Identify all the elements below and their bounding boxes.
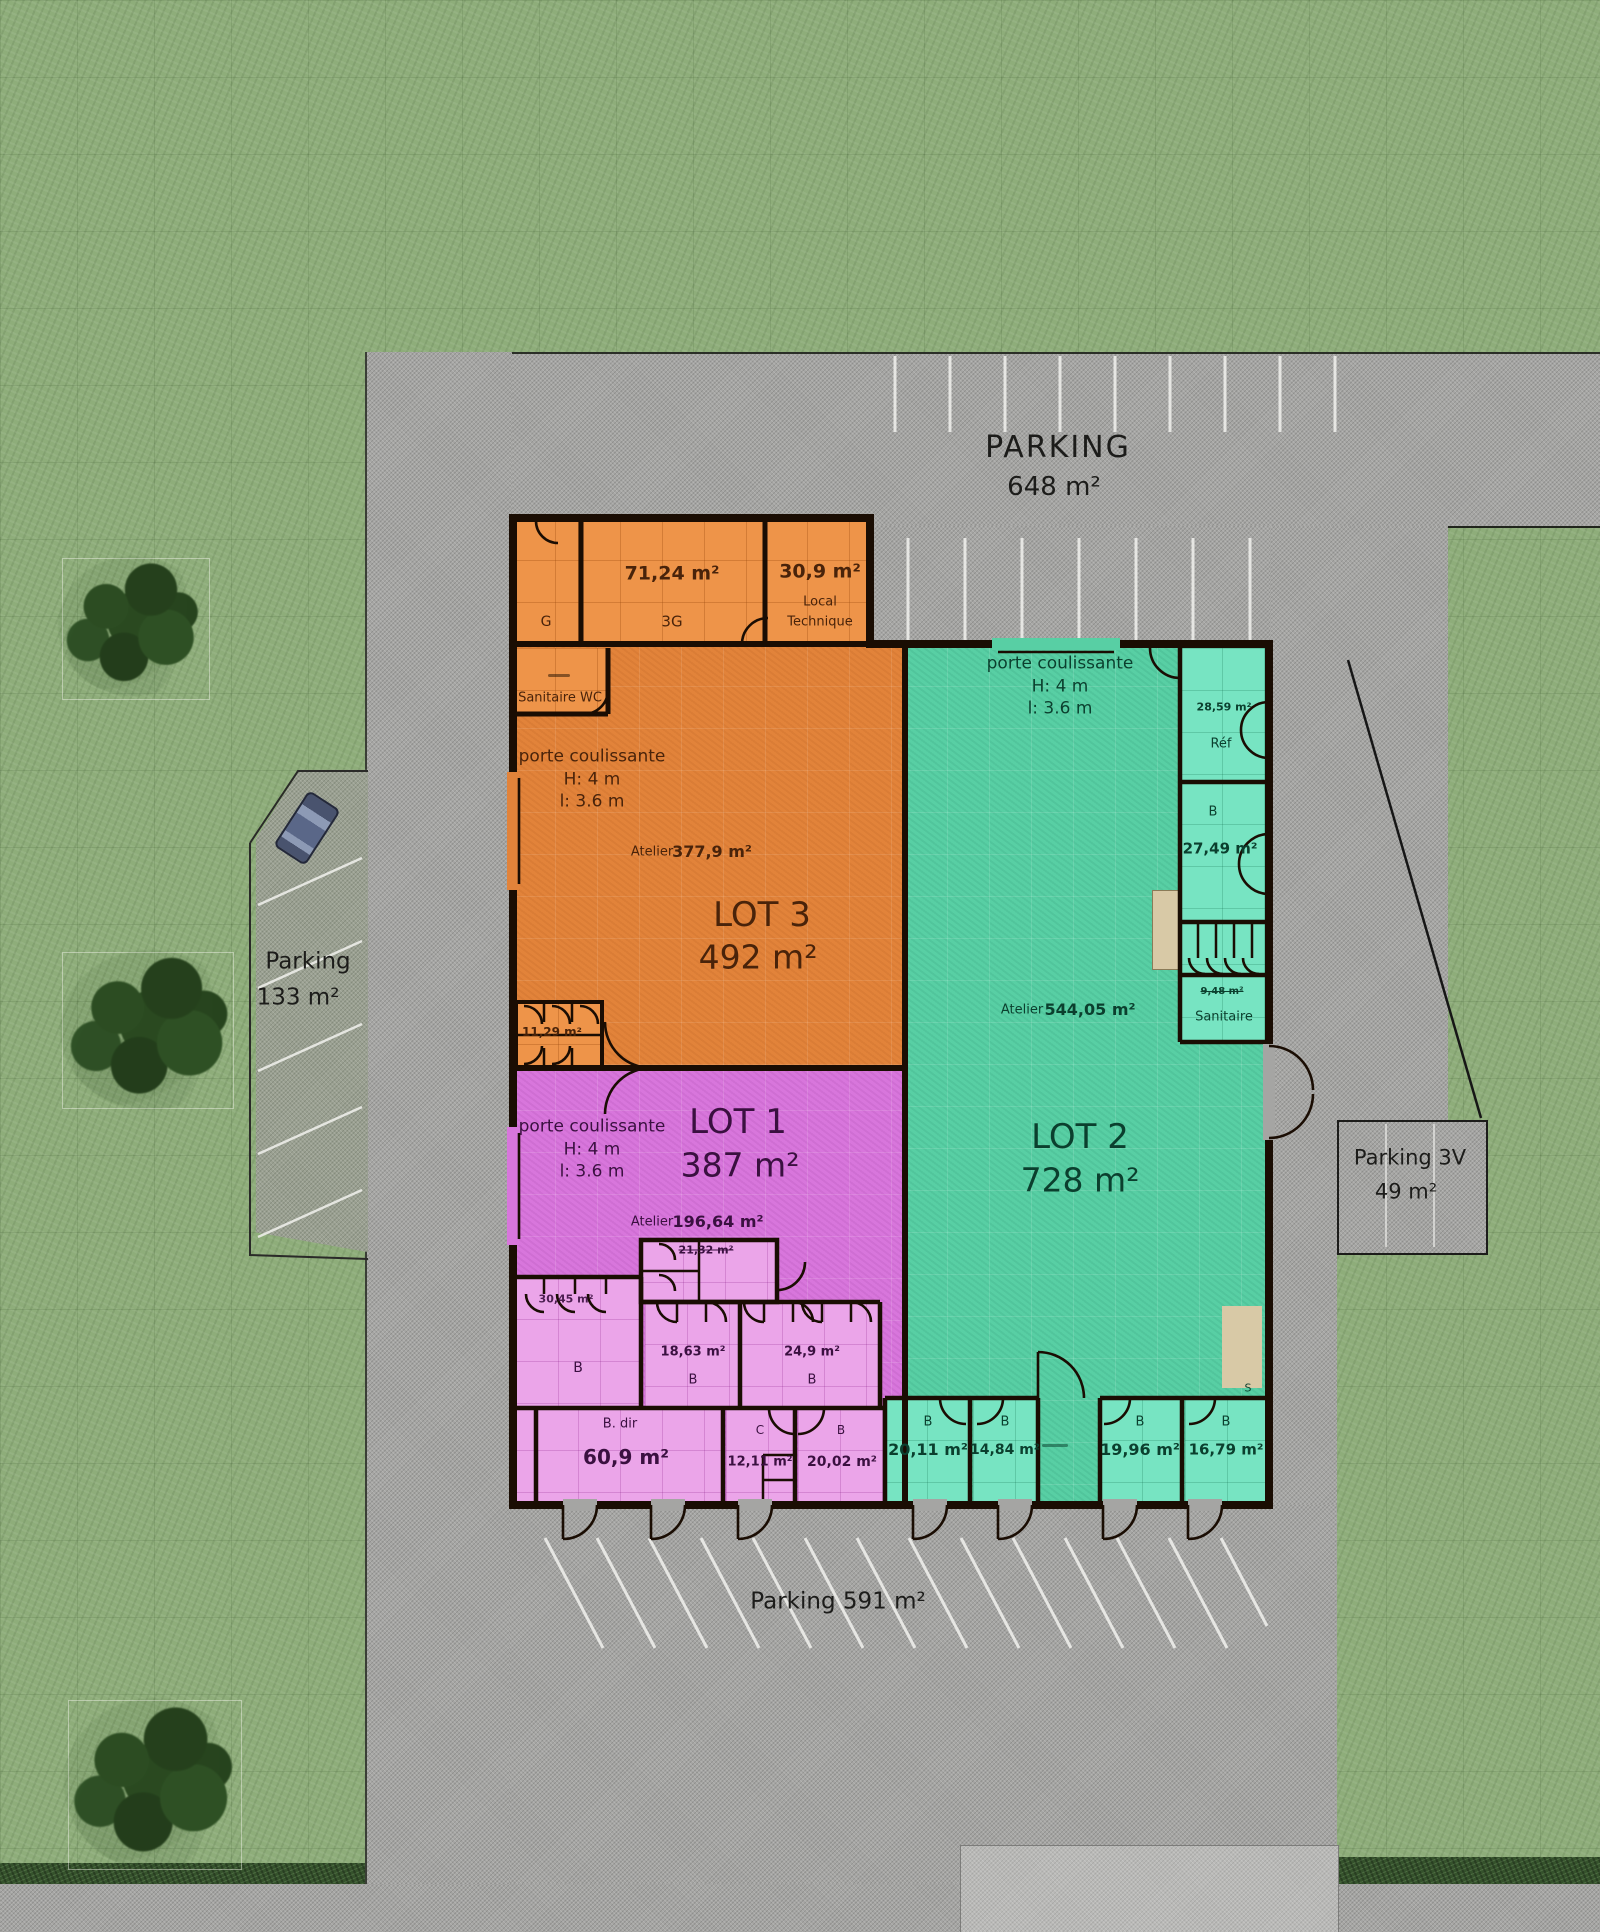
lot1-room-2002-area: 20,02 m²	[807, 1455, 877, 1469]
parking-left-area: 133 m²	[257, 987, 340, 1010]
door-arcs	[519, 521, 1313, 1539]
lot1-room-249-name: B	[808, 1374, 817, 1387]
lot2-room-2749-area: 27,49 m²	[1183, 842, 1258, 857]
lot2-room-1996-area: 19,96 m²	[1100, 1442, 1180, 1458]
lot3-room-1129-area: 11,29 m²	[522, 1026, 582, 1038]
lot1-room-1863-name: B	[689, 1374, 698, 1387]
lot2-exit-label: S	[1245, 1383, 1252, 1394]
annex-g-label: G	[541, 615, 552, 629]
lot2-room-ref-area: 28,59 m²	[1197, 702, 1252, 713]
lot3-atelier-area: 377,9 m²	[672, 844, 752, 860]
lot1-room-b-label: B	[573, 1361, 583, 1375]
local-technique-name-1: Local	[803, 596, 837, 609]
lot2-door-line1: porte coulissante	[987, 656, 1134, 673]
lot1-room-3045-area: 30,45 m²	[539, 1294, 594, 1305]
lot1-room-bdir-area: 60,9 m²	[583, 1447, 669, 1467]
boundary-diagonal	[1348, 660, 1481, 1118]
lot3-atelier-label: Atelier	[631, 846, 673, 859]
parking-top-area: 648 m²	[1007, 474, 1101, 500]
tiny-area-note	[1042, 1444, 1068, 1447]
lot3-sanitaire-wc-label: Sanitaire WC	[518, 692, 602, 705]
lot2-room-1996-name: B	[1136, 1416, 1145, 1429]
parking-bottom-label: Parking 591 m²	[750, 1591, 925, 1614]
lot1-room-249-area: 24,9 m²	[784, 1346, 840, 1359]
lot1-room-c-area: 12,11 m²	[728, 1456, 793, 1469]
lot2-room-1484-area: 14,84 m²	[970, 1443, 1040, 1457]
lot2-room-1679-name: B	[1222, 1416, 1231, 1429]
lot1-room-2132-area: 21,32 m²	[679, 1245, 734, 1256]
lot1-door-line1: porte coulissante	[519, 1119, 666, 1136]
lot3-door-line3: l: 3.6 m	[560, 794, 625, 811]
lot1-door-line2: H: 4 m	[564, 1142, 621, 1159]
site-plan: PARKING 648 m² G 71,24 m² 3G 30,9 m² Loc…	[0, 0, 1600, 1932]
parking-top-name: PARKING	[985, 433, 1131, 463]
lot2-room-1484-name: B	[1001, 1416, 1010, 1429]
parking-3v-name: Parking 3V	[1354, 1148, 1466, 1169]
lot2-room-1679-area: 16,79 m²	[1189, 1443, 1264, 1458]
local-technique-name-2: Technique	[787, 616, 852, 629]
lot2-area: 728 m²	[1021, 1164, 1140, 1197]
lot2-room-ref-name: Réf	[1210, 738, 1231, 751]
lot1-room-2002-name: B	[837, 1424, 845, 1436]
annex-3g-name: 3G	[661, 615, 682, 630]
lot2-room-2011-area: 20,11 m²	[888, 1442, 968, 1458]
lot1-room-bdir-name: B. dir	[603, 1418, 637, 1431]
lot1-atelier-area: 196,64 m²	[673, 1214, 764, 1230]
lot1-room-c-name: C	[756, 1424, 764, 1436]
lot3-area: 492 m²	[699, 941, 818, 974]
lot1-area: 387 m²	[681, 1149, 800, 1182]
lot3-name: LOT 3	[713, 898, 811, 932]
lot3-door-line1: porte coulissante	[519, 749, 666, 766]
lot2-atelier-area: 544,05 m²	[1045, 1002, 1136, 1018]
lot2-sanitaire-area: 9,48 m²	[1201, 987, 1244, 997]
lot2-sanitaire-name: Sanitaire	[1195, 1011, 1253, 1024]
lot1-room-1863-area: 18,63 m²	[661, 1346, 726, 1359]
parking-3v-area: 49 m²	[1375, 1182, 1437, 1203]
lot1-name: LOT 1	[689, 1105, 787, 1139]
tiny-area-note	[548, 674, 570, 677]
annex-3g-area: 71,24 m²	[625, 565, 720, 584]
lot2-room-2749-name: B	[1209, 806, 1218, 819]
lot2-room-2011-name: B	[924, 1416, 933, 1429]
lot2-door-line3: l: 3.6 m	[1028, 701, 1093, 718]
lot2-door-line2: H: 4 m	[1032, 679, 1089, 696]
lot1-atelier-label: Atelier	[631, 1216, 673, 1229]
parking-left-name: Parking	[265, 951, 350, 974]
lot3-door-line2: H: 4 m	[564, 772, 621, 789]
door-gaps	[507, 638, 1275, 1511]
lot1-door-line3: l: 3.6 m	[560, 1164, 625, 1181]
local-technique-area: 30,9 m²	[779, 563, 861, 582]
lot2-atelier-label: Atelier	[1001, 1004, 1043, 1017]
lot2-name: LOT 2	[1031, 1120, 1129, 1154]
